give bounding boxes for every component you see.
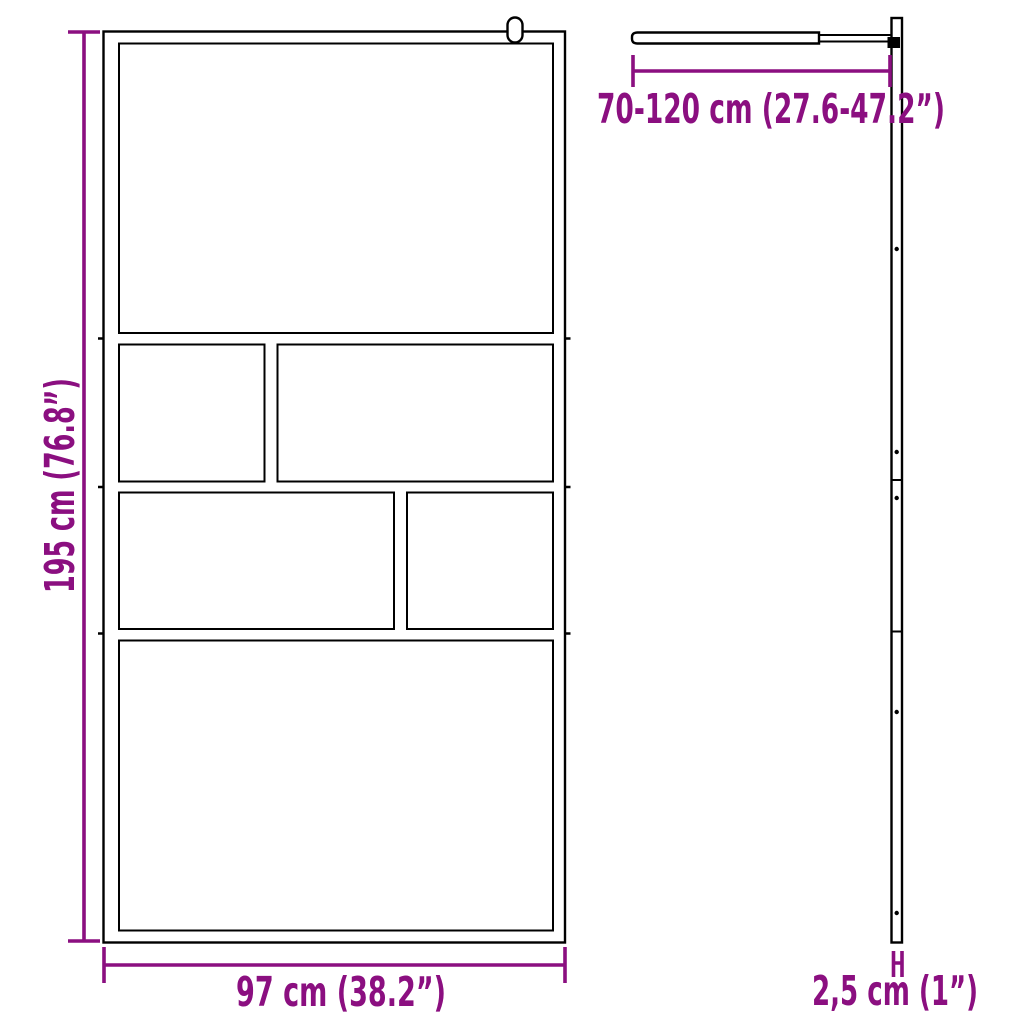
arm-length-dimension-line [633,55,890,87]
glass-pane-row1-left [119,345,265,482]
glass-pane-top [119,44,553,334]
thickness-dimension: 2,5 cm (1”) [812,951,978,1015]
arm-length-dimension-label: 70-120 cm (27.6-47.2”) [597,85,945,133]
height-dimension-label: 195 cm (76.8”) [36,378,84,593]
glass-pane-row1-right [278,345,554,482]
frame-outline [104,32,566,943]
glass-pane-row2-left [119,493,394,630]
height-dimension: 195 cm (76.8”) [36,32,100,941]
width-dimension-label: 97 cm (38.2”) [236,968,446,1016]
support-arm-outer-tube [632,33,819,44]
screw-dot [895,710,899,714]
front-view [98,18,571,943]
screw-dot [895,450,899,454]
dimension-diagram: 195 cm (76.8”) 97 cm (38.2”) 70-120 cm (… [0,0,1024,1024]
diagram-drawing: 195 cm (76.8”) 97 cm (38.2”) 70-120 cm (… [0,0,1024,1024]
arm-connector-front [508,18,523,43]
screw-dot [895,911,899,915]
wall-anchor-ticks [98,339,571,634]
support-arm-inner-tube [816,35,892,42]
width-dimension: 97 cm (38.2”) [104,947,565,1016]
side-view [632,18,902,943]
glass-pane-bottom [119,641,553,931]
glass-pane-row2-right [407,493,553,630]
arm-mount-clamp [888,37,901,48]
screw-dot [895,247,899,251]
screw-dot [895,496,899,500]
thickness-dimension-label: 2,5 cm (1”) [812,967,978,1015]
